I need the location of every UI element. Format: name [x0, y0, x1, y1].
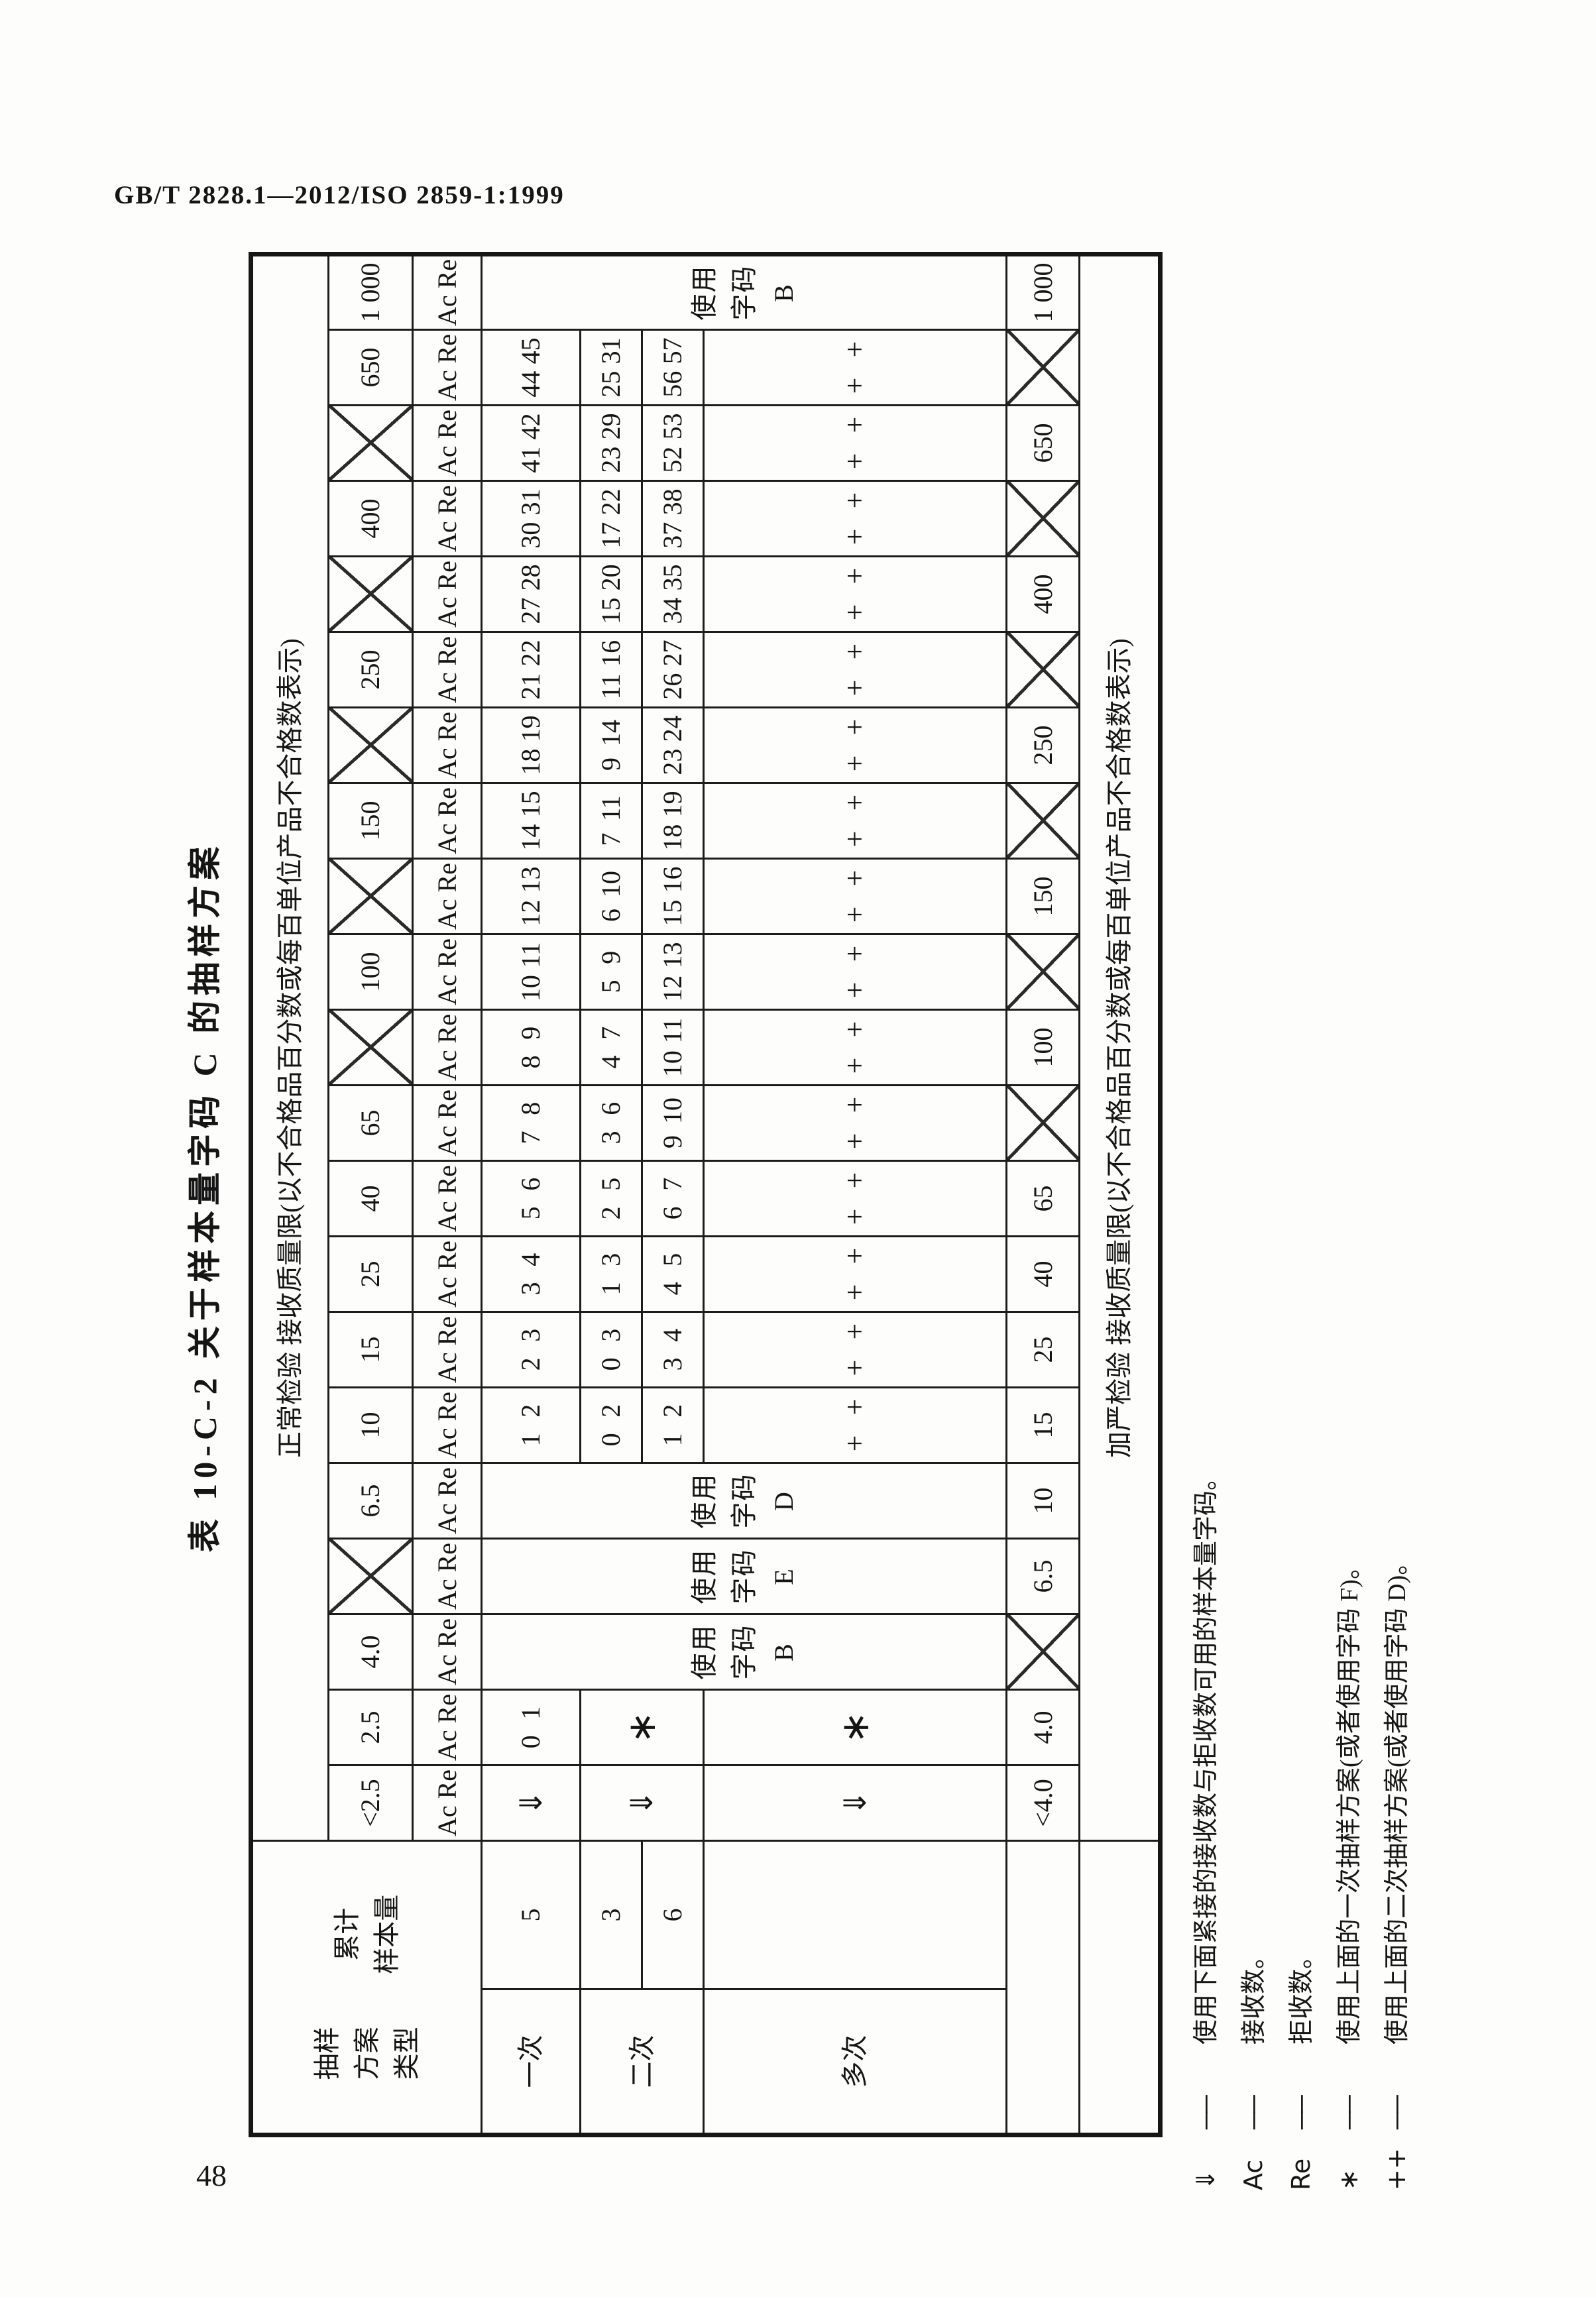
single-cell-18-value: 42 — [516, 413, 546, 439]
use-code-line: E — [764, 1540, 804, 1613]
double-first-12-value: 6 — [596, 909, 626, 922]
double-first-6-value: 3 — [596, 1329, 626, 1342]
double-first-5-value: 2 — [596, 1404, 626, 1418]
plus-plus-symbol: + — [838, 1209, 872, 1225]
tightened-aql-label-x-19 — [1007, 330, 1080, 406]
double-second-18-value: 52 — [657, 447, 688, 473]
plus-plus-symbol: + — [838, 492, 872, 509]
use-code-line: 使用 — [685, 256, 724, 329]
multiple-cell-5: ++ — [704, 1388, 1007, 1463]
double-second-11-value: 12 — [657, 976, 688, 1002]
single-cell-14: 1819 — [482, 708, 581, 783]
multiple-cell-9: ++ — [704, 1086, 1007, 1161]
single-cell-9-value: 8 — [516, 1102, 546, 1115]
tightened-aql-label-x-9 — [1007, 1086, 1080, 1161]
tightened-aql-label-40: 40 — [1007, 1237, 1080, 1312]
single-cell-10: 89 — [482, 1010, 581, 1086]
double-second-15-value: 27 — [657, 640, 688, 666]
multiple-cell-11: ++ — [704, 934, 1007, 1010]
ac-re-label-12: Ac Re — [413, 859, 482, 934]
double-first-18-value: 23 — [596, 447, 626, 473]
use-code-line: B — [764, 256, 804, 329]
plan-type-header-line: 抽样 — [308, 2027, 347, 2080]
double-second-12-value: 16 — [657, 866, 688, 893]
double-second-cell-19: 5657 — [642, 330, 704, 406]
single-cell-11: 1011 — [482, 934, 581, 1010]
normal-inspection-header: 正常检验 接收质量限(以不合格品百分数或每百单位产品不合格数表示) — [251, 254, 329, 1840]
normal-aql-label-650: 650 — [329, 330, 413, 406]
plus-plus-symbol: + — [838, 568, 872, 585]
single-cell-12: 1213 — [482, 859, 581, 934]
use-code-cell-D-4: 使用字码D — [482, 1463, 1007, 1539]
double-first-15-value: 11 — [596, 674, 626, 700]
double-second-18-value: 53 — [657, 413, 688, 439]
double-second-8-value: 6 — [657, 1206, 688, 1219]
single-cell-11-value: 11 — [516, 942, 546, 968]
single-cell-9-value: 7 — [516, 1131, 546, 1144]
footnote-dash: ── — [1383, 2045, 1412, 2129]
double-first-cell-18: 2329 — [581, 406, 642, 481]
plus-plus-symbol: + — [838, 907, 872, 923]
footnote-dash: ── — [1192, 2045, 1221, 2129]
double-first-cell-7: 13 — [581, 1237, 642, 1312]
double-second-cell-15: 2627 — [642, 632, 704, 708]
down-arrow-symbol: ⇓ — [837, 1790, 873, 1816]
cum-size-header-line: 样本量 — [367, 1895, 407, 1974]
tightened-aql-label-10: 10 — [1007, 1463, 1080, 1539]
tightened-inspection-header: 加严检验 接收质量限(以不合格品百分数或每百单位产品不合格数表示) — [1080, 254, 1161, 1840]
ac-re-label-17: Ac Re — [413, 481, 482, 557]
tightened-aql-label-15: 15 — [1007, 1388, 1080, 1463]
use-code-cell-B-20: 使用字码B — [482, 254, 1007, 329]
multiple-cell-0: ⇓ — [704, 1765, 1007, 1841]
double-second-7-value: 5 — [657, 1253, 688, 1266]
double-first-cell-8: 25 — [581, 1161, 642, 1237]
double-first-cell-9: 36 — [581, 1086, 642, 1161]
double-second-cell-12: 1516 — [642, 859, 704, 934]
ac-re-label-3: Ac Re — [413, 1539, 482, 1614]
double-second-7-value: 4 — [657, 1282, 688, 1295]
footnote-symbol-2: Re — [1286, 2129, 1316, 2190]
single-cell-14-value: 18 — [516, 749, 546, 775]
footnote-symbol-4: ++ — [1382, 2129, 1411, 2190]
single-cell-17-value: 31 — [516, 488, 546, 515]
tightened-corner-blank — [1007, 1841, 1080, 2135]
normal-aql-label-x-12 — [329, 859, 413, 934]
footnote-line-2: Re──拒收数。 — [1281, 255, 1317, 2190]
plus-plus-symbol: + — [838, 341, 872, 358]
normal-aql-label-10: 10 — [329, 1388, 413, 1463]
double-second-5-value: 2 — [657, 1404, 688, 1418]
double-second-cell-8: 67 — [642, 1161, 704, 1237]
double-second-12-value: 15 — [657, 900, 688, 926]
double-first-5-value: 0 — [596, 1433, 626, 1446]
multiple-cell-6: ++ — [704, 1312, 1007, 1388]
ac-re-label-6: Ac Re — [413, 1312, 482, 1388]
use-code-line: 字码 — [724, 1615, 764, 1689]
footnote-line-1: Ac──接收数。 — [1233, 255, 1269, 2190]
plus-plus-symbol: + — [838, 680, 872, 697]
rotated-table-block: 表 10-C-2 关于样本量字码 C 的抽样方案 抽样方案类型累计样本量正常检验… — [156, 255, 1389, 2190]
footnote-symbol-0: ⇓ — [1191, 2129, 1220, 2190]
tightened-aql-label-25: 25 — [1007, 1312, 1080, 1388]
multiple-cell-15: ++ — [704, 632, 1007, 708]
multiple-cell-10: ++ — [704, 1010, 1007, 1086]
double-first-12-value: 10 — [596, 871, 626, 897]
double-second-6-value: 3 — [657, 1357, 688, 1371]
single-cell-1: 01 — [482, 1690, 581, 1765]
plus-plus-symbol: + — [838, 1097, 872, 1113]
sampling-plan-table: 抽样方案类型累计样本量正常检验 接收质量限(以不合格品百分数或每百单位产品不合格… — [249, 252, 1163, 2137]
single-cell-5-value: 1 — [516, 1433, 546, 1446]
footnote-symbol-1: Ac — [1239, 2129, 1268, 2190]
double-second-16-value: 35 — [657, 564, 688, 590]
double-second-cell-10: 1011 — [642, 1010, 704, 1086]
plus-plus-symbol: + — [838, 1133, 872, 1150]
double-first-15-value: 16 — [596, 640, 626, 667]
plus-plus-symbol: + — [838, 1435, 872, 1452]
footnote-line-0: ⇓──使用下面紧接的接收数与拒收数可用的样本量字码。 — [1185, 255, 1222, 2190]
cum-size-double-1: 3 — [581, 1841, 642, 1989]
use-code-line: 使用 — [685, 1464, 724, 1538]
double-second-cell-6: 34 — [642, 1312, 704, 1388]
use-code-line: 使用 — [685, 1540, 724, 1613]
ac-re-label-7: Ac Re — [413, 1237, 482, 1312]
cum-size-double-2: 6 — [642, 1841, 704, 1989]
plus-plus-symbol: + — [838, 1248, 872, 1264]
use-code-line: 字码 — [724, 1540, 764, 1613]
single-cell-5-value: 2 — [516, 1404, 546, 1418]
normal-aql-label-1 000: 1 000 — [329, 254, 413, 329]
single-cell-10-value: 8 — [516, 1055, 546, 1068]
single-cell-1-value: 1 — [516, 1707, 546, 1720]
double-first-11-value: 5 — [596, 980, 626, 993]
single-cell-7-value: 4 — [516, 1253, 546, 1266]
table-title: 表 10-C-2 关于样本量字码 C 的抽样方案 — [156, 256, 249, 2137]
use-code-line: 字码 — [724, 1464, 764, 1538]
tightened-aql-label-1 000: 1 000 — [1007, 254, 1080, 329]
double-second-6-value: 4 — [657, 1329, 688, 1342]
cum-size-header-line: 累计 — [327, 1895, 367, 1974]
use-code-line: 使用 — [685, 1615, 724, 1689]
single-cell-8-value: 5 — [516, 1206, 546, 1219]
ac-re-label-20: Ac Re — [413, 254, 482, 329]
single-cell-13-value: 15 — [516, 791, 546, 817]
double-second-9-value: 10 — [657, 1097, 688, 1124]
single-cell-6: 23 — [482, 1312, 581, 1388]
double-first-cell-16: 1520 — [581, 557, 642, 632]
double-first-cell-5: 02 — [581, 1388, 642, 1463]
multiple-cell-18: ++ — [704, 406, 1007, 481]
double-first-18-value: 29 — [596, 413, 626, 439]
footnote-dash: ── — [1335, 2045, 1364, 2129]
multiple-cell-17: ++ — [704, 481, 1007, 557]
plus-plus-symbol: + — [838, 870, 872, 887]
plan-type-header-line: 类型 — [387, 2027, 427, 2080]
double-first-14-value: 14 — [596, 720, 626, 746]
plus-plus-symbol: + — [838, 831, 872, 848]
double-second-14-value: 24 — [657, 715, 688, 742]
footnote-text-2: 拒收数。 — [1281, 1944, 1317, 2045]
single-cell-17-value: 30 — [516, 522, 546, 549]
normal-aql-label-x-14 — [329, 708, 413, 783]
ac-re-label-5: Ac Re — [413, 1388, 482, 1463]
use-code-line: B — [764, 1615, 804, 1689]
plus-plus-symbol: + — [838, 982, 872, 999]
ac-re-label-18: Ac Re — [413, 406, 482, 481]
single-cell-12-value: 12 — [516, 900, 546, 926]
double-first-17-value: 17 — [596, 522, 626, 549]
asterisk-symbol: ∗ — [832, 1711, 878, 1744]
double-second-19-value: 56 — [657, 371, 688, 398]
double-first-cell-14: 914 — [581, 708, 642, 783]
single-cell-8: 56 — [482, 1161, 581, 1237]
double-second-11-value: 13 — [657, 942, 688, 968]
single-cell-13: 1415 — [482, 783, 581, 859]
single-cell-15: 2122 — [482, 632, 581, 708]
double-first-cell-12: 610 — [581, 859, 642, 934]
normal-aql-label-25: 25 — [329, 1237, 413, 1312]
double-first-19-value: 31 — [596, 337, 626, 364]
multiple-cell-14: ++ — [704, 708, 1007, 783]
double-first-cell-17: 1722 — [581, 481, 642, 557]
tightened-aql-label-250: 250 — [1007, 708, 1080, 783]
use-code-cell-E-3: 使用字码E — [482, 1539, 1007, 1614]
single-cell-19: 4445 — [482, 330, 581, 406]
plan-label-single: 一次 — [482, 1989, 581, 2135]
double-merged-cell-0: ⇓ — [581, 1765, 704, 1841]
multiple-cell-12: ++ — [704, 859, 1007, 934]
plus-plus-symbol: + — [838, 604, 872, 621]
plus-plus-symbol: + — [838, 946, 872, 962]
page-number: 48 — [196, 2158, 227, 2193]
double-first-17-value: 22 — [596, 488, 626, 515]
multiple-cell-19: ++ — [704, 330, 1007, 406]
ac-re-label-16: Ac Re — [413, 557, 482, 632]
double-second-14-value: 23 — [657, 749, 688, 775]
tightened-aql-label-x-17 — [1007, 481, 1080, 557]
ac-re-label-10: Ac Re — [413, 1010, 482, 1086]
ac-re-label-19: Ac Re — [413, 330, 482, 406]
double-second-16-value: 34 — [657, 598, 688, 624]
double-merged-cell-1: ∗ — [581, 1690, 704, 1765]
normal-aql-label-x-10 — [329, 1010, 413, 1086]
plus-plus-symbol: + — [838, 1360, 872, 1376]
multiple-cell-16: ++ — [704, 557, 1007, 632]
plus-plus-symbol: + — [838, 1021, 872, 1038]
tightened-aql-label-x-13 — [1007, 783, 1080, 859]
double-first-19-value: 25 — [596, 371, 626, 398]
asterisk-symbol: ∗ — [619, 1711, 664, 1744]
double-second-5-value: 1 — [657, 1433, 688, 1446]
normal-aql-label-40: 40 — [329, 1161, 413, 1237]
normal-aql-label-150: 150 — [329, 783, 413, 859]
footnote-text-3: 使用上面的一次抽样方案(或者使用字码 F)。 — [1328, 1554, 1365, 2045]
use-code-line: D — [764, 1464, 804, 1538]
single-cell-7: 34 — [482, 1237, 581, 1312]
single-cell-16-value: 28 — [516, 564, 546, 590]
double-first-cell-13: 711 — [581, 783, 642, 859]
double-first-7-value: 1 — [596, 1282, 626, 1295]
footnote-dash: ── — [1287, 2045, 1316, 2129]
down-arrow-symbol: ⇓ — [513, 1790, 549, 1816]
double-first-9-value: 6 — [596, 1102, 626, 1115]
normal-aql-label-100: 100 — [329, 934, 413, 1010]
single-cell-19-value: 45 — [516, 337, 546, 364]
single-cell-14-value: 19 — [516, 715, 546, 742]
double-first-16-value: 15 — [596, 598, 626, 624]
ac-re-label-15: Ac Re — [413, 632, 482, 708]
ac-re-label-1: Ac Re — [413, 1690, 482, 1765]
tightened-aql-label-4.0: 4.0 — [1007, 1690, 1080, 1765]
plan-label-multiple: 多次 — [704, 1989, 1007, 2135]
single-cell-7-value: 3 — [516, 1282, 546, 1295]
double-first-10-value: 7 — [596, 1027, 626, 1040]
single-cell-15-value: 22 — [516, 640, 546, 666]
double-first-8-value: 5 — [596, 1178, 626, 1191]
double-second-cell-17: 3738 — [642, 481, 704, 557]
ac-re-label-8: Ac Re — [413, 1161, 482, 1237]
normal-aql-label-6.5: 6.5 — [329, 1463, 413, 1539]
tightened-aql-label-6.5: 6.5 — [1007, 1539, 1080, 1614]
single-cell-10-value: 9 — [516, 1027, 546, 1040]
double-second-17-value: 38 — [657, 488, 688, 515]
plus-plus-symbol: + — [838, 1284, 872, 1301]
single-cell-16: 2728 — [482, 557, 581, 632]
footnote-line-3: ∗──使用上面的一次抽样方案(或者使用字码 F)。 — [1328, 255, 1365, 2190]
double-second-15-value: 26 — [657, 673, 688, 700]
single-cell-0: ⇓ — [482, 1765, 581, 1841]
plus-plus-symbol: + — [838, 1058, 872, 1074]
double-second-cell-11: 1213 — [642, 934, 704, 1010]
plan-label-double: 二次 — [581, 1989, 704, 2135]
normal-aql-label-x-16 — [329, 557, 413, 632]
multiple-cell-7: ++ — [704, 1237, 1007, 1312]
ac-re-label-2: Ac Re — [413, 1614, 482, 1690]
single-cell-9: 78 — [482, 1086, 581, 1161]
multiple-cell-13: ++ — [704, 783, 1007, 859]
plus-plus-symbol: + — [838, 795, 872, 811]
use-code-cell-B-2: 使用字码B — [482, 1614, 1007, 1690]
single-cell-11-value: 10 — [516, 975, 546, 1001]
double-second-cell-16: 3435 — [642, 557, 704, 632]
footnote-text-0: 使用下面紧接的接收数与拒收数可用的样本量字码。 — [1185, 1465, 1222, 2045]
double-second-cell-7: 45 — [642, 1237, 704, 1312]
double-first-6-value: 0 — [596, 1357, 626, 1371]
double-second-13-value: 18 — [657, 824, 688, 851]
normal-aql-label-x-18 — [329, 406, 413, 481]
single-cell-15-value: 21 — [516, 673, 546, 700]
double-second-13-value: 19 — [657, 791, 688, 817]
tightened-corner-blank-2 — [1080, 1841, 1161, 2135]
plus-plus-symbol: + — [838, 719, 872, 736]
normal-aql-label-65: 65 — [329, 1086, 413, 1161]
normal-aql-label-<2.5: <2.5 — [329, 1765, 413, 1841]
normal-aql-label-4.0: 4.0 — [329, 1614, 413, 1690]
ac-re-label-13: Ac Re — [413, 783, 482, 859]
plus-plus-symbol: + — [838, 644, 872, 660]
single-cell-12-value: 13 — [516, 866, 546, 893]
double-second-19-value: 57 — [657, 337, 688, 364]
double-first-8-value: 2 — [596, 1206, 626, 1219]
footnote-text-1: 接收数。 — [1233, 1944, 1269, 2045]
document-header: GB/T 2828.1—2012/ISO 2859-1:1999 — [114, 180, 565, 210]
single-cell-18-value: 41 — [516, 447, 546, 473]
cum-size-single: 5 — [482, 1841, 581, 1989]
double-second-cell-14: 2324 — [642, 708, 704, 783]
double-first-cell-19: 2531 — [581, 330, 642, 406]
tightened-aql-label-65: 65 — [1007, 1161, 1080, 1237]
plus-plus-symbol: + — [838, 417, 872, 433]
double-second-9-value: 9 — [657, 1135, 688, 1148]
double-first-cell-11: 59 — [581, 934, 642, 1010]
double-first-13-value: 7 — [596, 833, 626, 846]
ac-re-label-9: Ac Re — [413, 1086, 482, 1161]
footnote-symbol-3: ∗ — [1334, 2129, 1363, 2190]
tightened-aql-label-x-2 — [1007, 1614, 1080, 1690]
multiple-cell-1: ∗ — [704, 1690, 1007, 1765]
normal-aql-label-250: 250 — [329, 632, 413, 708]
single-cell-6-value: 3 — [516, 1329, 546, 1342]
plus-plus-symbol: + — [838, 756, 872, 772]
multiple-cell-8: ++ — [704, 1161, 1007, 1237]
double-first-7-value: 3 — [596, 1253, 626, 1266]
double-first-11-value: 9 — [596, 951, 626, 964]
use-code-line: 字码 — [724, 256, 764, 329]
ac-re-label-11: Ac Re — [413, 934, 482, 1010]
down-arrow-symbol: ⇓ — [624, 1790, 659, 1816]
double-second-cell-5: 12 — [642, 1388, 704, 1463]
single-cell-5: 12 — [482, 1388, 581, 1463]
single-cell-19-value: 44 — [516, 371, 546, 398]
plus-plus-symbol: + — [838, 453, 872, 470]
tightened-aql-label-x-11 — [1007, 934, 1080, 1010]
plus-plus-symbol: + — [838, 529, 872, 545]
plan-type-column-header: 抽样方案类型 — [308, 2027, 427, 2080]
ac-re-label-14: Ac Re — [413, 708, 482, 783]
plus-plus-symbol: + — [838, 1323, 872, 1340]
single-cell-8-value: 6 — [516, 1178, 546, 1191]
tightened-aql-label-<4.0: <4.0 — [1007, 1765, 1080, 1841]
double-second-cell-13: 1819 — [642, 783, 704, 859]
single-cell-13-value: 14 — [516, 824, 546, 851]
ac-re-label-0: Ac Re — [413, 1765, 482, 1841]
double-first-9-value: 3 — [596, 1131, 626, 1144]
single-cell-16-value: 27 — [516, 598, 546, 624]
normal-aql-label-15: 15 — [329, 1312, 413, 1388]
normal-aql-label-400: 400 — [329, 481, 413, 557]
scanned-standard-page: GB/T 2828.1—2012/ISO 2859-1:1999 表 10-C-… — [0, 0, 1596, 2297]
tightened-aql-label-x-15 — [1007, 632, 1080, 708]
footnotes: ⇓──使用下面紧接的接收数与拒收数可用的样本量字码。Ac──接收数。Re──拒收… — [1185, 255, 1412, 2190]
double-second-17-value: 37 — [657, 522, 688, 549]
double-second-10-value: 11 — [657, 1018, 688, 1044]
plus-plus-symbol: + — [838, 378, 872, 394]
single-cell-18: 4142 — [482, 406, 581, 481]
cum-sample-size-column-header: 累计样本量 — [327, 1895, 407, 1974]
double-second-8-value: 7 — [657, 1178, 688, 1191]
corner-blank-cell: 抽样方案类型累计样本量 — [251, 1841, 482, 2135]
single-cell-17: 3031 — [482, 481, 581, 557]
tightened-aql-label-100: 100 — [1007, 1010, 1080, 1086]
normal-aql-label-x-3 — [329, 1539, 413, 1614]
double-first-13-value: 11 — [596, 796, 626, 822]
double-second-cell-18: 5253 — [642, 406, 704, 481]
double-first-cell-15: 1116 — [581, 632, 642, 708]
double-first-cell-6: 03 — [581, 1312, 642, 1388]
single-cell-1-value: 0 — [516, 1735, 546, 1748]
single-cell-6-value: 2 — [516, 1357, 546, 1371]
